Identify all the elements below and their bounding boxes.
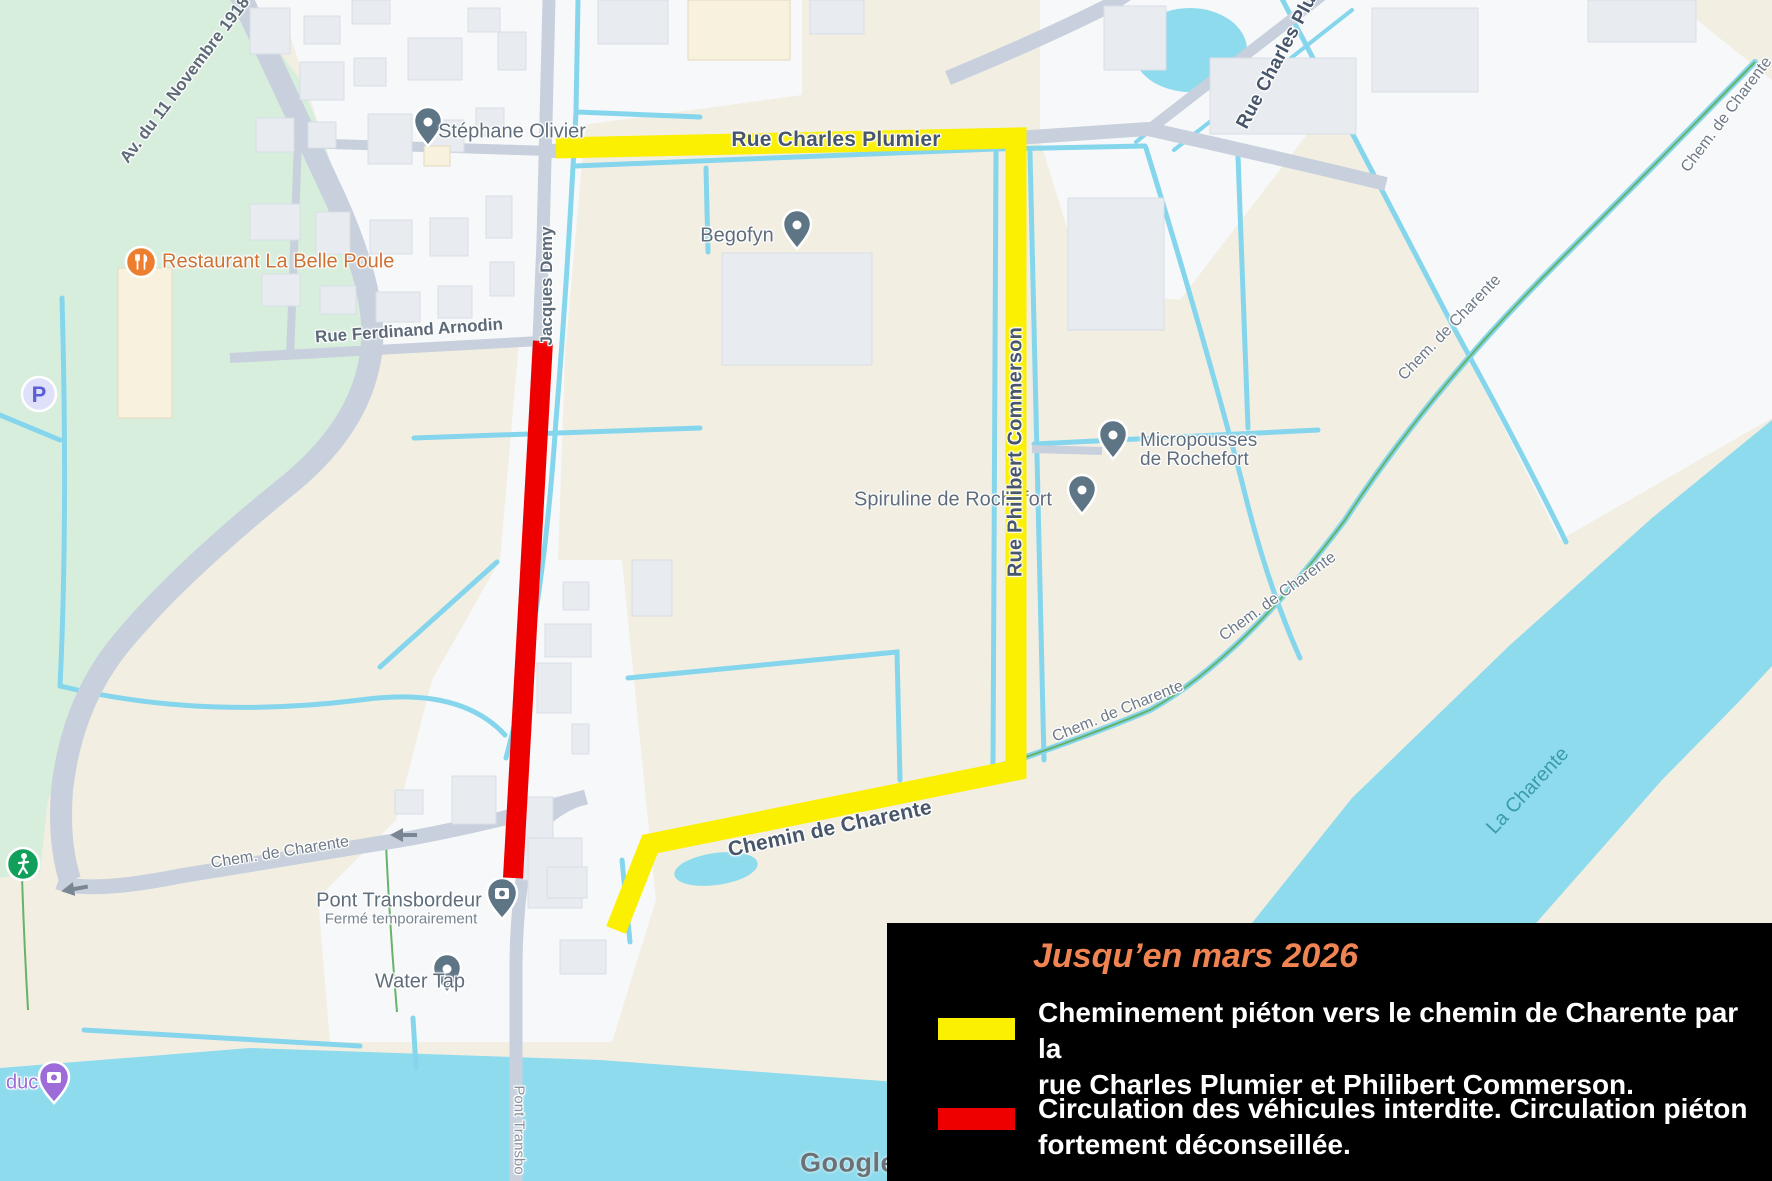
google-watermark: Google <box>800 1148 896 1179</box>
poi-label-viaduc-fragment[interactable]: duc <box>6 1072 38 1095</box>
street-label-rue-jacques-demy: Jacques Demy <box>537 226 557 345</box>
legend-text-forbidden-route: Circulation des véhicules interdite. Cir… <box>1038 1091 1758 1163</box>
poi-label-begofyn[interactable]: Begofyn <box>700 225 773 248</box>
street-label-chemin-de-charente: Chemin de Charente <box>726 796 934 863</box>
poi-status-ferme-temporairement: Fermé temporairement <box>325 911 478 928</box>
legend-panel: Jusqu’en mars 2026 Cheminement piéton ve… <box>887 923 1772 1181</box>
street-label-rue-charles-plumier: Rue Charles Plumier <box>731 128 940 152</box>
poi-label-pont-transbordeur[interactable]: Pont Transbordeur <box>316 890 482 913</box>
street-label-avenue-11-novembre: Av. du 11 Novembre 1918 <box>116 0 254 167</box>
legend-title: Jusqu’en mars 2026 <box>1033 937 1358 976</box>
street-label-rue-ferdinand-arnodin: Rue Ferdinand Arnodin <box>314 314 503 347</box>
poi-label-water-tap[interactable]: Water Tap <box>375 971 465 994</box>
poi-label-restaurant-la-belle-poule[interactable]: Restaurant La Belle Poule <box>162 251 394 274</box>
river-label-la-charente: La Charente <box>1482 743 1574 839</box>
street-label-rue-philibert-commerson: Rue Philibert Commerson <box>1005 327 1028 577</box>
poi-label-line: de Rochefort <box>1140 450 1257 469</box>
street-label-chem-de-charente: Chem. de Charente <box>1678 54 1772 176</box>
legend-text-pedestrian-route: Cheminement piéton vers le chemin de Cha… <box>1038 995 1758 1103</box>
street-label-chem-de-charente: Chem. de Charente <box>1216 549 1340 646</box>
poi-label-stephane-olivier[interactable]: Stéphane Olivier <box>438 121 586 144</box>
legend-swatch-red <box>938 1108 1015 1130</box>
street-label-pont-transbordeur-road: Pont Transbo <box>511 1085 528 1174</box>
street-label-rue-charles-plumier-truncated: Rue Charles Plu <box>1232 0 1321 133</box>
legend-swatch-yellow <box>938 1018 1015 1040</box>
poi-label-line: Micropousses <box>1140 431 1257 450</box>
map-screenshot: P Spiruline de Rochefort Rue Charles Plu… <box>0 0 1772 1181</box>
street-label-chem-de-charente: Chem. de Charente <box>210 833 351 873</box>
street-label-chem-de-charente: Chem. de Charente <box>1050 678 1186 747</box>
street-label-chem-de-charente: Chem. de Charente <box>1395 272 1505 385</box>
poi-label-micropousses[interactable]: Micropousses de Rochefort <box>1140 431 1257 469</box>
